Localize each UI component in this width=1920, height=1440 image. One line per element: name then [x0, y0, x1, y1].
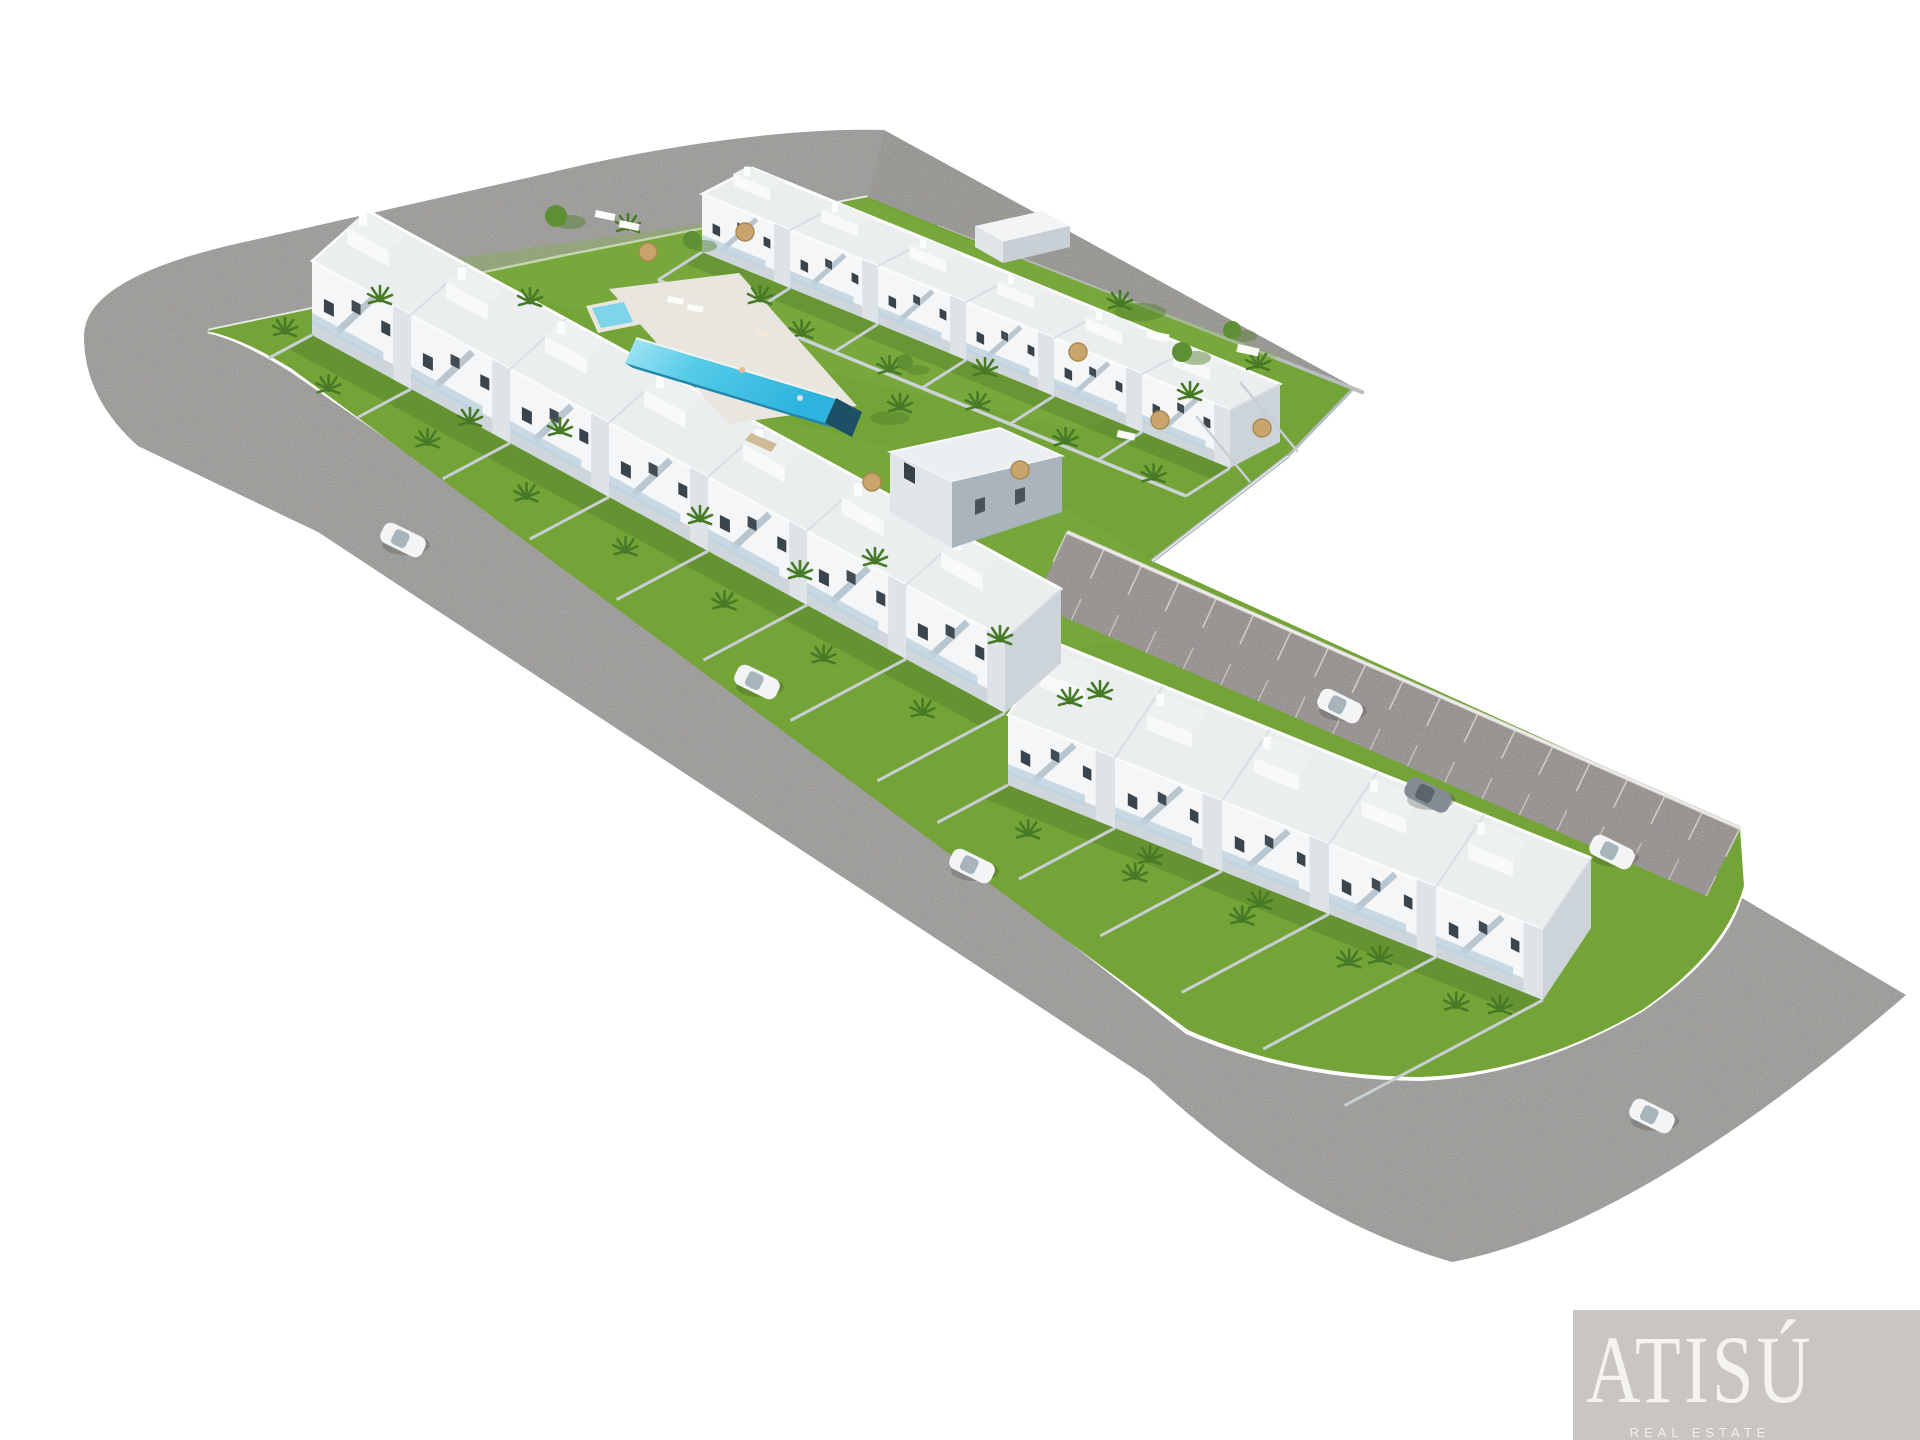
svg-text:ATISÚ: ATISÚ — [1586, 1316, 1814, 1423]
svg-text:REAL ESTATE: REAL ESTATE — [1630, 1425, 1771, 1440]
